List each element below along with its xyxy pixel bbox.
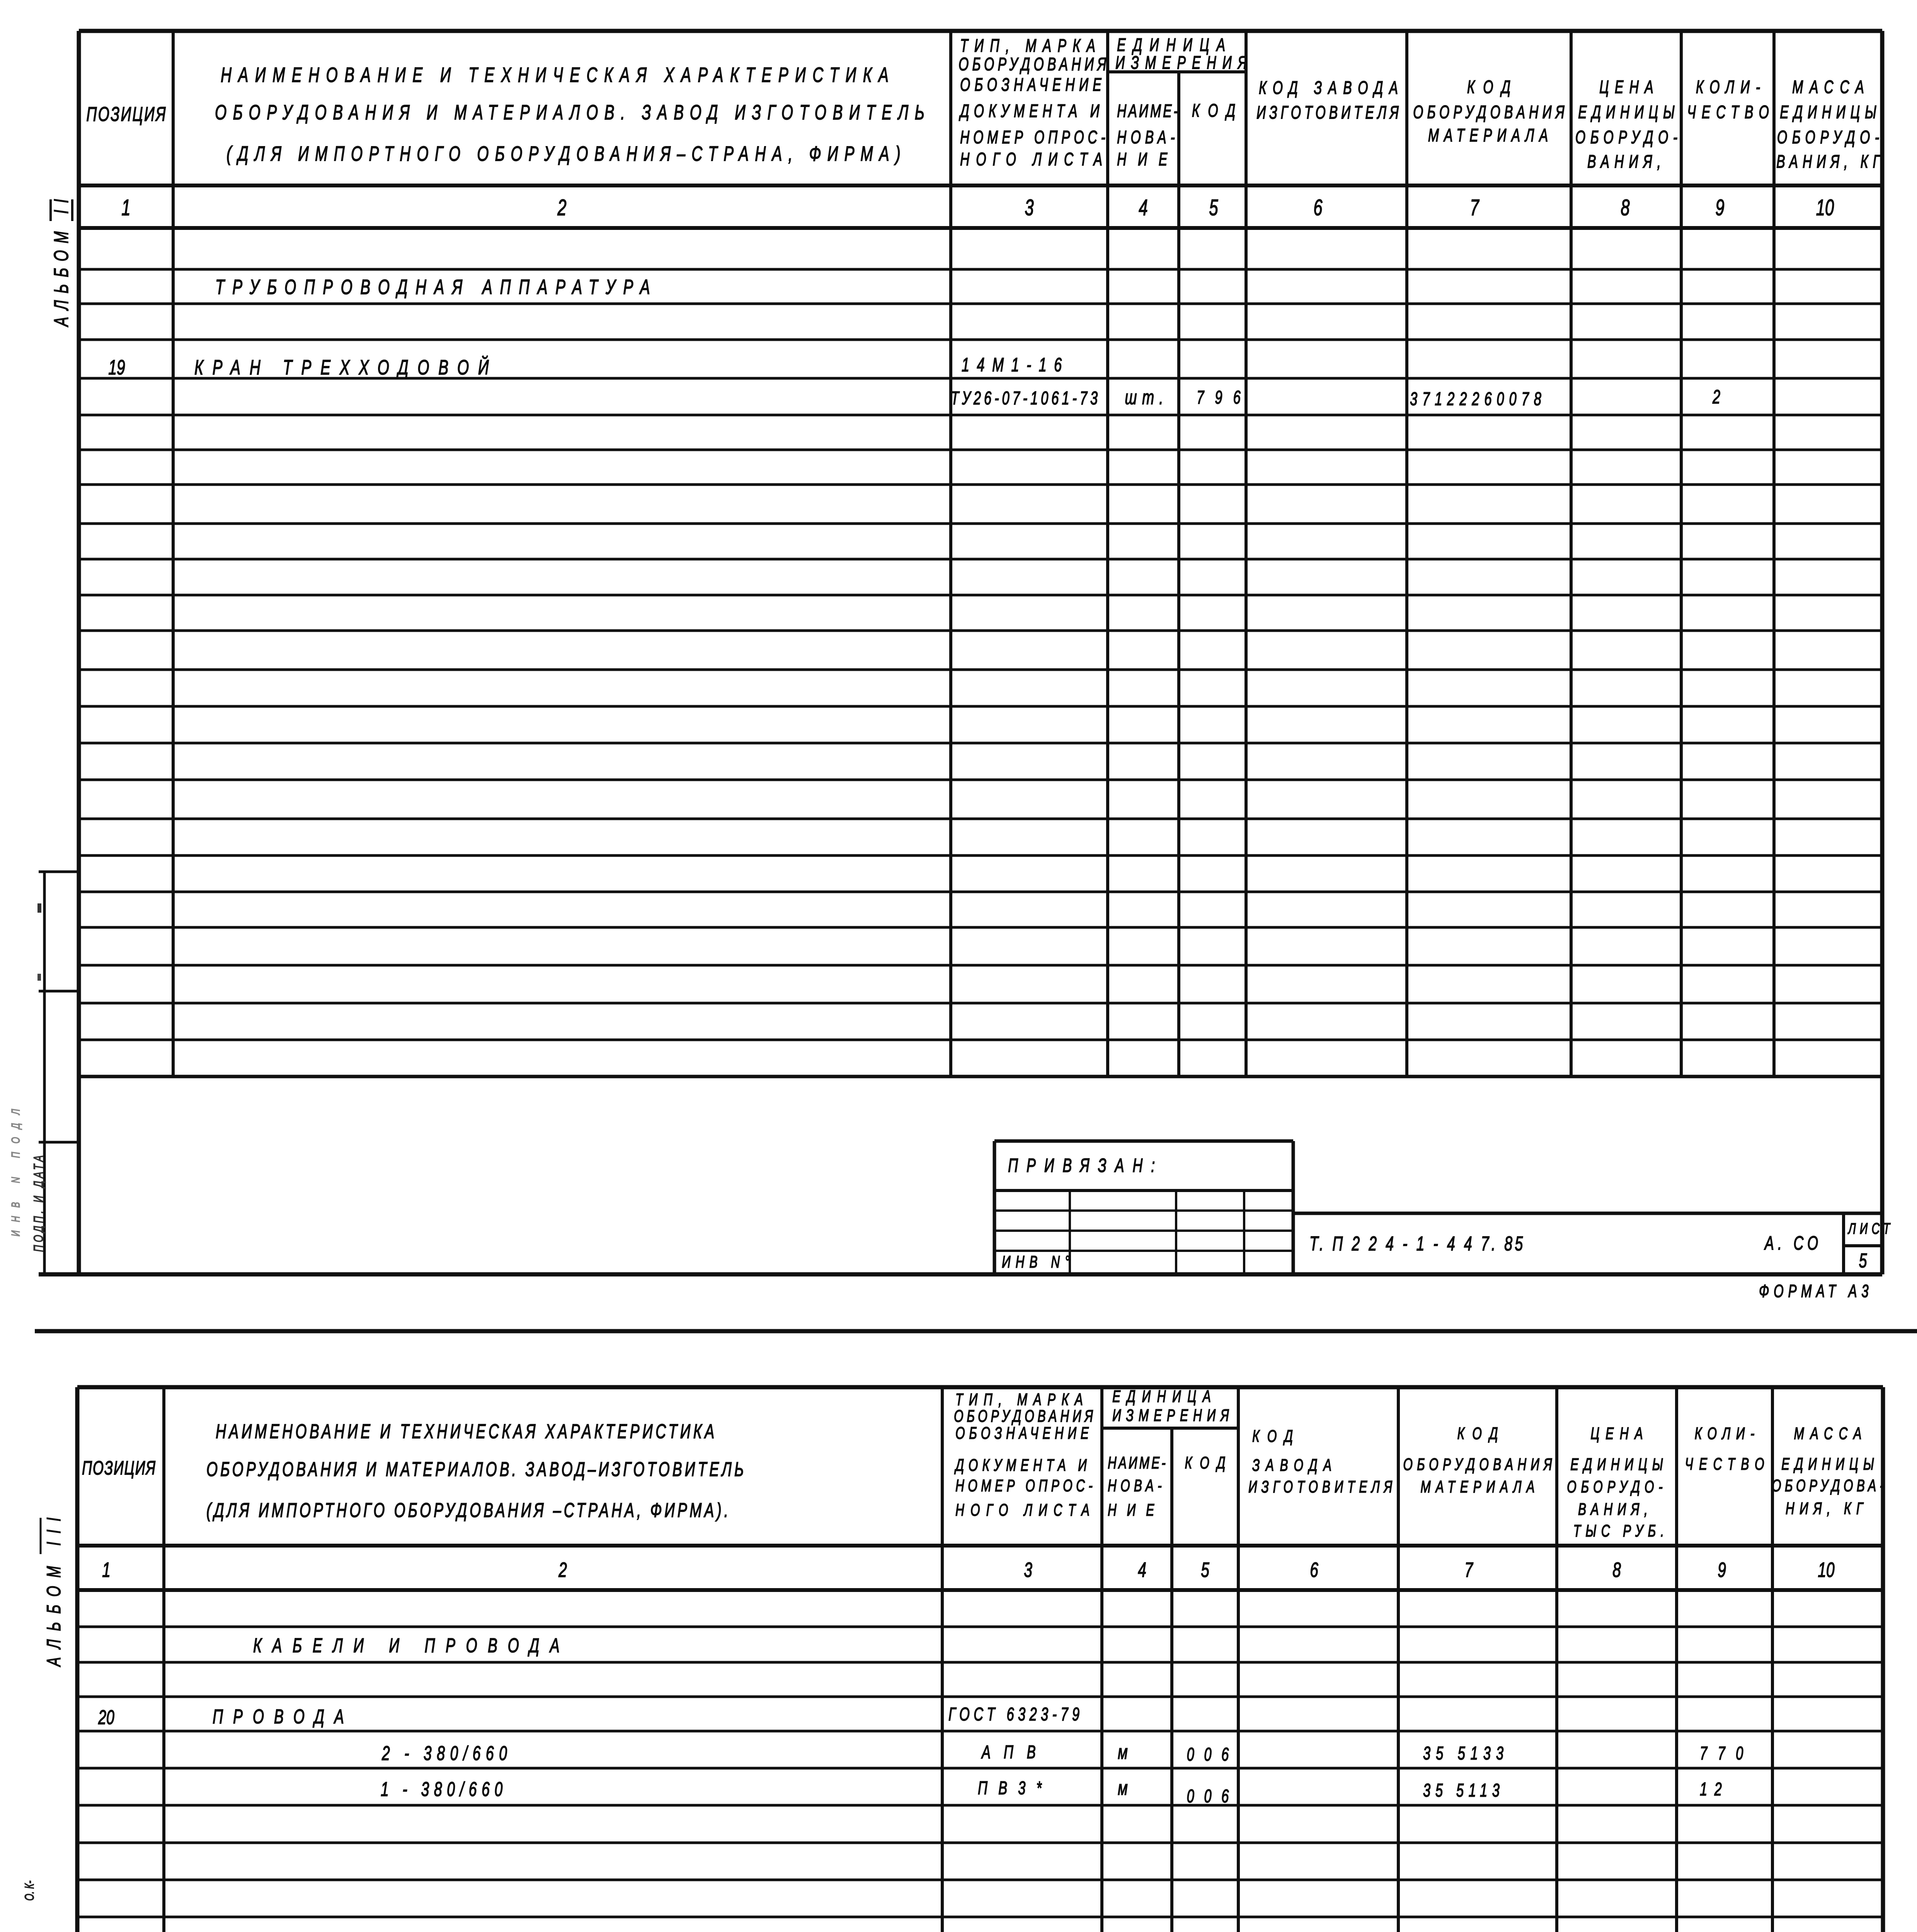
svg-text:ОБОРУДОВА-: ОБОРУДОВА- bbox=[1772, 1476, 1884, 1495]
svg-text:КРАН ТРЕХХОДОВОЙ: КРАН ТРЕХХОДОВОЙ bbox=[194, 355, 489, 379]
svg-text:О. К-: О. К- bbox=[22, 1881, 36, 1901]
svg-text:ТИП, МАРКА: ТИП, МАРКА bbox=[955, 1390, 1083, 1409]
svg-text:ЕДИНИЦЫ: ЕДИНИЦЫ bbox=[1780, 102, 1876, 122]
svg-text:10: 10 bbox=[1818, 1558, 1834, 1582]
svg-text:ТИП, МАРКА: ТИП, МАРКА bbox=[960, 36, 1095, 56]
svg-text:НИЯ, КГ: НИЯ, КГ bbox=[1786, 1499, 1864, 1518]
svg-text:9: 9 bbox=[1718, 1558, 1726, 1582]
svg-text:НАИМЕ-: НАИМЕ- bbox=[1117, 101, 1178, 121]
svg-text:НОГО ЛИСТА: НОГО ЛИСТА bbox=[960, 149, 1102, 170]
svg-text:4: 4 bbox=[1139, 195, 1147, 220]
svg-text:ЦЕНА: ЦЕНА bbox=[1599, 77, 1653, 97]
svg-text:ОБОРУДО-: ОБОРУДО- bbox=[1777, 127, 1879, 148]
svg-text:НОВА-: НОВА- bbox=[1108, 1476, 1162, 1495]
svg-text:7: 7 bbox=[1470, 195, 1479, 220]
svg-text:МАССА: МАССА bbox=[1792, 77, 1864, 97]
svg-text:ОБОРУДО-: ОБОРУДО- bbox=[1575, 127, 1677, 148]
svg-text:770: 770 bbox=[1700, 1743, 1743, 1764]
svg-text:1: 1 bbox=[121, 195, 130, 220]
svg-text:6: 6 bbox=[1310, 1558, 1318, 1582]
svg-text:35 5133: 35 5133 bbox=[1423, 1743, 1503, 1764]
svg-text:ТЫС РУБ.: ТЫС РУБ. bbox=[1573, 1521, 1664, 1540]
svg-text:ПРИВЯЗАН:: ПРИВЯЗАН: bbox=[1008, 1155, 1155, 1176]
svg-text:НОМЕР ОПРОС-: НОМЕР ОПРОС- bbox=[960, 127, 1105, 148]
svg-text:ОБОЗНАЧЕНИЕ: ОБОЗНАЧЕНИЕ bbox=[955, 1423, 1089, 1442]
svg-text:ИЗГОТОВИТЕЛЯ: ИЗГОТОВИТЕЛЯ bbox=[1256, 102, 1399, 123]
svg-text:ТРУБОПРОВОДНАЯ АППАРАТУРА: ТРУБОПРОВОДНАЯ АППАРАТУРА bbox=[215, 275, 650, 299]
svg-text:ВАНИЯ,: ВАНИЯ, bbox=[1578, 1500, 1648, 1519]
svg-text:НОГО ЛИСТА: НОГО ЛИСТА bbox=[955, 1500, 1090, 1519]
svg-text:ПВ3*: ПВ3* bbox=[978, 1777, 1042, 1798]
svg-text:ПОЗИЦИЯ: ПОЗИЦИЯ bbox=[86, 103, 165, 126]
svg-text:1: 1 bbox=[102, 1558, 111, 1582]
svg-text:9: 9 bbox=[1715, 195, 1724, 220]
svg-text:ЕДИНИЦА: ЕДИНИЦА bbox=[1112, 1387, 1211, 1406]
svg-text:МАССА: МАССА bbox=[1794, 1424, 1862, 1443]
svg-text:ЛИСТ: ЛИСТ bbox=[1847, 1220, 1891, 1238]
svg-text:ИНВ N ПОДЛ: ИНВ N ПОДЛ bbox=[9, 1109, 22, 1236]
svg-text:14М1-16: 14М1-16 bbox=[962, 354, 1062, 376]
svg-text:ЧЕСТВО: ЧЕСТВО bbox=[1687, 102, 1769, 122]
svg-text:ПОЗИЦИЯ: ПОЗИЦИЯ bbox=[82, 1458, 155, 1479]
svg-text:ЦЕНА: ЦЕНА bbox=[1590, 1424, 1643, 1443]
svg-text:2: 2 bbox=[557, 195, 567, 220]
svg-text:ГОСТ 6323-79: ГОСТ 6323-79 bbox=[948, 1704, 1079, 1725]
svg-text:ЕДИНИЦА: ЕДИНИЦА bbox=[1117, 35, 1225, 55]
svg-text:КОЛИ-: КОЛИ- bbox=[1695, 1424, 1755, 1443]
svg-text:ВАНИЯ, КГ: ВАНИЯ, КГ bbox=[1776, 151, 1881, 172]
svg-text:МАТЕРИАЛА: МАТЕРИАЛА bbox=[1428, 125, 1548, 146]
svg-text:19: 19 bbox=[108, 355, 125, 379]
svg-text:ДОКУМЕНТА И: ДОКУМЕНТА И bbox=[954, 1456, 1087, 1475]
svg-text:4: 4 bbox=[1138, 1558, 1146, 1582]
svg-text:35 5113: 35 5113 bbox=[1423, 1780, 1500, 1801]
svg-text:006: 006 bbox=[1187, 1786, 1229, 1806]
svg-text:ИЗМЕРЕНИЯ: ИЗМЕРЕНИЯ bbox=[1115, 53, 1247, 73]
svg-text:7: 7 bbox=[1464, 1558, 1473, 1582]
svg-text:ЕДИНИЦЫ: ЕДИНИЦЫ bbox=[1570, 1455, 1663, 1474]
svg-text:АПВ: АПВ bbox=[981, 1742, 1036, 1762]
svg-text:ИЗМЕРЕНИЯ: ИЗМЕРЕНИЯ bbox=[1112, 1406, 1229, 1425]
svg-text:8: 8 bbox=[1621, 195, 1629, 220]
svg-text:ОБОРУДОВАНИЯ И МАТЕРИАЛОВ. ЗАВ: ОБОРУДОВАНИЯ И МАТЕРИАЛОВ. ЗАВОД–ИЗГОТОВ… bbox=[206, 1458, 744, 1481]
svg-text:(ДЛЯ ИМПОРТНОГО ОБОРУДОВАНИЯ: (ДЛЯ ИМПОРТНОГО ОБОРУДОВАНИЯ –СТРАНА, ФИ… bbox=[206, 1499, 728, 1522]
svg-text:ЗАВОДА: ЗАВОДА bbox=[1252, 1456, 1331, 1475]
svg-text:КОД: КОД bbox=[1457, 1424, 1498, 1443]
svg-text:ОБОРУДОВАНИЯ: ОБОРУДОВАНИЯ bbox=[958, 54, 1106, 75]
svg-text:2: 2 bbox=[1712, 386, 1720, 408]
svg-text:Т. П 2 2 4 - 1 - 4 4 7. 85: Т. П 2 2 4 - 1 - 4 4 7. 85 bbox=[1309, 1232, 1523, 1255]
svg-text:АЛЬБОМ III: АЛЬБОМ III bbox=[43, 1517, 65, 1667]
svg-text:ОБОРУДОВАНИЯ: ОБОРУДОВАНИЯ bbox=[954, 1406, 1093, 1425]
svg-text:10: 10 bbox=[1816, 195, 1834, 220]
svg-text:6: 6 bbox=[1313, 195, 1323, 220]
svg-text:КОД: КОД bbox=[1467, 77, 1510, 97]
svg-text:ОБОРУДОВАНИЯ: ОБОРУДОВАНИЯ bbox=[1413, 102, 1565, 122]
svg-text:(ДЛЯ ИМПОРТНОГО ОБОРУДОВАНИЯ: (ДЛЯ ИМПОРТНОГО ОБОРУДОВАНИЯ–СТРАНА, ФИР… bbox=[226, 142, 901, 165]
svg-text:ОБОРУДО-: ОБОРУДО- bbox=[1567, 1477, 1663, 1496]
svg-text:ОБОЗНАЧЕНИЕ: ОБОЗНАЧЕНИЕ bbox=[960, 75, 1102, 95]
svg-text:м: м bbox=[1118, 1741, 1128, 1764]
svg-text:1 - 380/660: 1 - 380/660 bbox=[381, 1778, 502, 1801]
svg-text:НИЕ: НИЕ bbox=[1117, 149, 1168, 170]
svg-text:ДОКУМЕНТА И: ДОКУМЕНТА И bbox=[959, 101, 1100, 121]
svg-text:ИЗГОТОВИТЕЛЯ: ИЗГОТОВИТЕЛЯ bbox=[1248, 1477, 1393, 1496]
svg-text:20: 20 bbox=[98, 1706, 114, 1729]
svg-text:ВАНИЯ,: ВАНИЯ, bbox=[1587, 151, 1661, 172]
svg-text:МАТЕРИАЛА: МАТЕРИАЛА bbox=[1420, 1477, 1534, 1496]
svg-text:КАБЕЛИ И ПРОВОДА: КАБЕЛИ И ПРОВОДА bbox=[253, 1634, 560, 1657]
svg-text:А. СО: А. СО bbox=[1764, 1233, 1818, 1254]
svg-text:м: м bbox=[1118, 1777, 1128, 1799]
svg-text:ЕДИНИЦЫ: ЕДИНИЦЫ bbox=[1578, 102, 1675, 122]
svg-text:КОД ЗАВОДА: КОД ЗАВОДА bbox=[1259, 78, 1398, 98]
svg-text:КОД: КОД bbox=[1192, 100, 1235, 121]
svg-text:ЧЕСТВО: ЧЕСТВО bbox=[1685, 1454, 1764, 1473]
svg-text:12: 12 bbox=[1700, 1779, 1722, 1799]
svg-text:АЛЬБОМ II: АЛЬБОМ II bbox=[50, 199, 73, 328]
svg-text:КОД: КОД bbox=[1252, 1427, 1293, 1446]
svg-text:ПРОВОДА: ПРОВОДА bbox=[213, 1705, 344, 1728]
svg-text:ЕДИНИЦЫ: ЕДИНИЦЫ bbox=[1781, 1454, 1874, 1473]
svg-text:ОБОРУДОВАНИЯ: ОБОРУДОВАНИЯ bbox=[1403, 1455, 1552, 1474]
svg-text:КОЛИ-: КОЛИ- bbox=[1696, 77, 1760, 97]
svg-text:3: 3 bbox=[1024, 1558, 1032, 1582]
svg-text:2: 2 bbox=[558, 1558, 567, 1582]
svg-text:2 - 380/660: 2 - 380/660 bbox=[381, 1742, 507, 1765]
svg-text:ИНВ N°: ИНВ N° bbox=[1002, 1252, 1070, 1271]
svg-text:НОВА-: НОВА- bbox=[1117, 127, 1175, 148]
svg-text:3: 3 bbox=[1025, 195, 1033, 220]
svg-text:5: 5 bbox=[1209, 195, 1218, 220]
svg-text:НАИМЕНОВАНИЕ И ТЕХНИЧЕСКАЯ Х: НАИМЕНОВАНИЕ И ТЕХНИЧЕСКАЯ ХАРАКТЕРИСТИК… bbox=[216, 1420, 714, 1443]
svg-text:НОМЕР ОПРОС-: НОМЕР ОПРОС- bbox=[955, 1476, 1093, 1495]
svg-text:37122260078: 37122260078 bbox=[1410, 388, 1541, 409]
svg-text:шт.: шт. bbox=[1125, 386, 1163, 409]
svg-text:ТУ26-07-1061-73: ТУ26-07-1061-73 bbox=[951, 388, 1098, 408]
svg-text:796: 796 bbox=[1197, 387, 1241, 408]
svg-text:006: 006 bbox=[1187, 1744, 1229, 1765]
svg-text:5: 5 bbox=[1201, 1558, 1209, 1582]
svg-text:НАИМЕНОВАНИЕ И ТЕХНИЧЕСКАЯ: НАИМЕНОВАНИЕ И ТЕХНИЧЕСКАЯ ХАРАКТЕРИСТИК… bbox=[221, 63, 889, 87]
svg-text:НИЕ: НИЕ bbox=[1108, 1500, 1154, 1519]
svg-text:5: 5 bbox=[1859, 1249, 1867, 1272]
svg-text:8: 8 bbox=[1612, 1558, 1621, 1582]
svg-text:КОД: КОД bbox=[1185, 1453, 1225, 1472]
svg-text:ОБОРУДОВАНИЯ И МАТЕРИАЛОВ. З: ОБОРУДОВАНИЯ И МАТЕРИАЛОВ. ЗАВОД ИЗГОТОВ… bbox=[215, 100, 924, 124]
svg-text:НАИМЕ-: НАИМЕ- bbox=[1108, 1453, 1166, 1472]
svg-text:ФОРМАТ А3: ФОРМАТ А3 bbox=[1759, 1282, 1869, 1301]
